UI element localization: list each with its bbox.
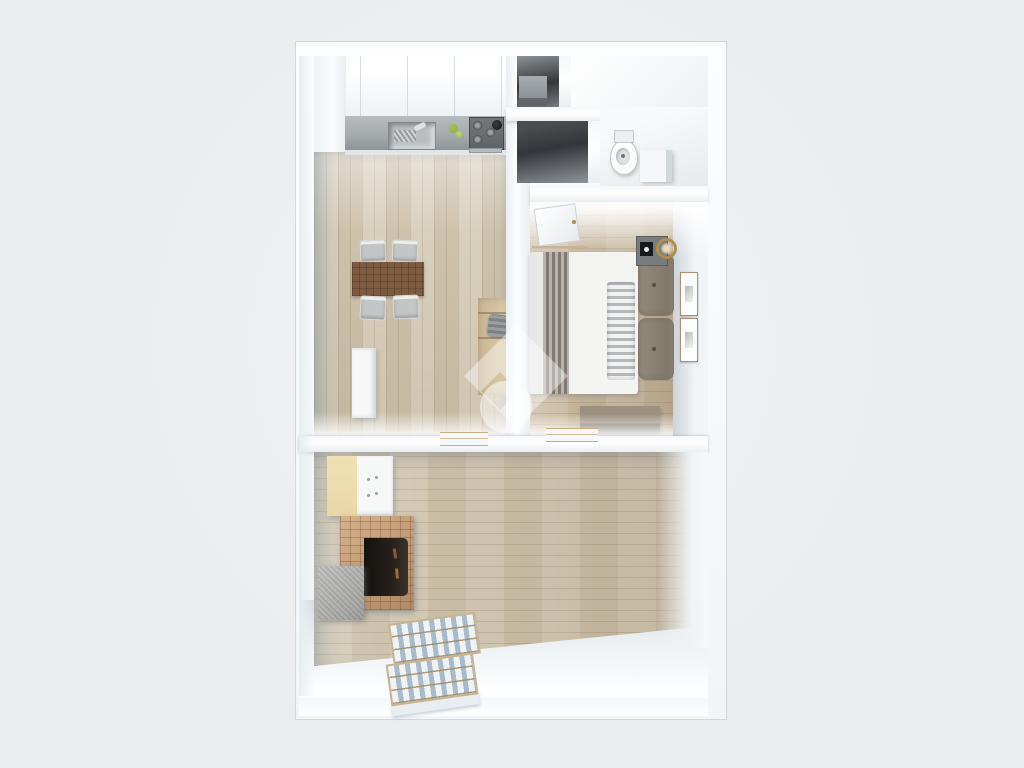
cabinet-handle-icon: [375, 492, 378, 495]
stove-controls: [469, 148, 502, 153]
fireplace-opening: [364, 538, 408, 596]
cabinet-handle-icon: [367, 494, 370, 497]
slatted-staircase: [380, 610, 488, 718]
storage-niche-lower: [517, 121, 588, 183]
ribbed-throw: [607, 282, 635, 380]
bed-pillow: [638, 318, 674, 380]
cabinet-handle-icon: [375, 476, 378, 479]
dining-chair: [359, 295, 386, 320]
green-bottle: [456, 131, 463, 138]
floorplan-scene: [0, 0, 1024, 768]
white-cabinet: [352, 348, 376, 418]
wall-segment: [506, 107, 600, 121]
bath-cabinet: [640, 150, 672, 182]
storage-niche-upper: [517, 56, 559, 107]
wall-segment: [588, 121, 600, 183]
burner-icon: [473, 135, 482, 144]
left-wall-face: [299, 56, 314, 696]
burner-icon: [473, 121, 482, 130]
speaker: [640, 242, 653, 256]
gold-lamp-icon: [656, 238, 677, 259]
apartment-outer-walls: [296, 42, 726, 719]
bedroom-top-wall: [530, 186, 708, 202]
dining-table: [352, 262, 424, 296]
dining-chair: [359, 239, 386, 262]
concrete-block: [318, 566, 364, 620]
bottom-wall-top-edge: [299, 698, 708, 716]
picture-frame: [680, 272, 698, 316]
speaker-dot-icon: [644, 247, 649, 252]
bathroom-floor: [571, 56, 708, 107]
tall-cabinet-column: [314, 56, 346, 152]
fire-log-icon: [395, 568, 399, 578]
niche-cabinet: [519, 76, 547, 106]
cabinet-handle-icon: [367, 478, 370, 481]
wall-segment: [559, 56, 571, 107]
cream-cabinet: [327, 456, 393, 516]
living-right-wall-face: [656, 452, 708, 648]
dishes-icon: [394, 130, 416, 142]
dining-chair: [393, 295, 420, 320]
toilet-button: [621, 154, 625, 158]
dining-chair: [392, 240, 419, 263]
pot-icon: [492, 120, 502, 130]
door-handle-icon: [572, 220, 576, 224]
stove: [469, 117, 504, 150]
watermark-circle: [480, 381, 532, 433]
toilet-tank: [614, 130, 634, 143]
watermark-logo: [455, 320, 585, 445]
bedroom-door: [534, 203, 581, 246]
cream-cabinet-side: [327, 456, 357, 516]
picture-frame: [680, 318, 698, 362]
fire-log-icon: [393, 548, 398, 558]
